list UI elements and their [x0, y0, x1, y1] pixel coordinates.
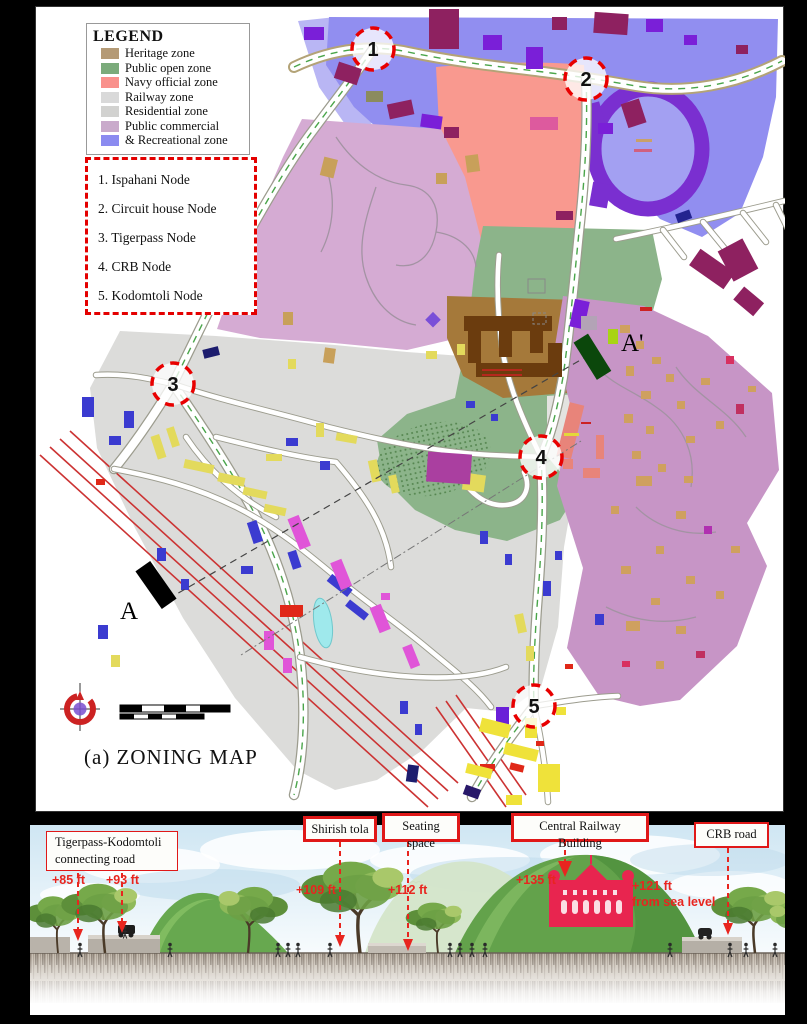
- callout-crb-building: Central Railway Building: [511, 813, 649, 842]
- elevation-112: +112 ft: [388, 882, 427, 898]
- figure-root: A A' 1 2 3 4 5: [0, 0, 807, 1024]
- legend-item: Heritage zone: [93, 47, 243, 61]
- legend-item: Public commercial: [93, 120, 243, 134]
- node-3-number: 3: [167, 374, 178, 396]
- elevation-93: +93 ft: [106, 872, 139, 888]
- stadium: [583, 89, 702, 209]
- elevation-109: +109 ft: [296, 882, 336, 898]
- callout-crb-road: CRB road: [694, 822, 769, 848]
- legend-swatch-residential: [101, 106, 119, 117]
- node-key-item-4: 4. CRB Node: [98, 259, 248, 275]
- node-1-number: 1: [367, 39, 378, 61]
- section-marker-a-prime-label: A': [621, 330, 644, 357]
- panel-a-caption: (a) ZONING MAP: [84, 745, 258, 770]
- legend-item: Public open zone: [93, 62, 243, 76]
- ground: [30, 953, 785, 1005]
- node-4-number: 4: [535, 447, 547, 469]
- legend-swatch-heritage: [101, 48, 119, 59]
- legend-item: Residential zone: [93, 105, 243, 119]
- callout-shirish-tola: Shirish tola: [303, 816, 377, 842]
- node-key-item-2: 2. Circuit house Node: [98, 201, 248, 217]
- compass-icon: [60, 683, 100, 731]
- scale-bar: [120, 705, 230, 719]
- legend-title: LEGEND: [93, 28, 243, 46]
- elevation-85: +85 ft: [52, 872, 85, 888]
- elevation-121: +121 ft from sea level: [632, 878, 715, 911]
- node-key: 1. Ispahani Node 2. Circuit house Node 3…: [85, 157, 257, 315]
- legend-item: Navy official zone: [93, 76, 243, 90]
- node-5-number: 5: [528, 696, 539, 718]
- zoning-map-panel: A A' 1 2 3 4 5: [35, 6, 784, 812]
- callout-seating-space: Seating space: [382, 813, 460, 842]
- callout-tigerpass-road: Tigerpass-Kodomtoli connecting road: [46, 831, 178, 871]
- legend: LEGEND Heritage zone Public open zone Na…: [86, 23, 250, 155]
- node-key-item-5: 5. Kodomtoli Node: [98, 288, 248, 304]
- legend-swatch-navy: [101, 77, 119, 88]
- legend-item: & Recreational zone: [93, 134, 243, 148]
- legend-swatch-recreational: [101, 135, 119, 146]
- legend-item: Railway zone: [93, 91, 243, 105]
- buildings-kodomtoli: [463, 707, 566, 805]
- node-key-item-3: 3. Tigerpass Node: [98, 230, 248, 246]
- legend-swatch-commercial: [101, 121, 119, 132]
- legend-swatch-public-open: [101, 63, 119, 74]
- node-2-number: 2: [580, 69, 591, 91]
- section-marker-a-label: A: [120, 598, 138, 625]
- node-key-item-1: 1. Ispahani Node: [98, 172, 248, 188]
- legend-swatch-railway: [101, 92, 119, 103]
- elevation-135: +135 ft: [516, 872, 556, 888]
